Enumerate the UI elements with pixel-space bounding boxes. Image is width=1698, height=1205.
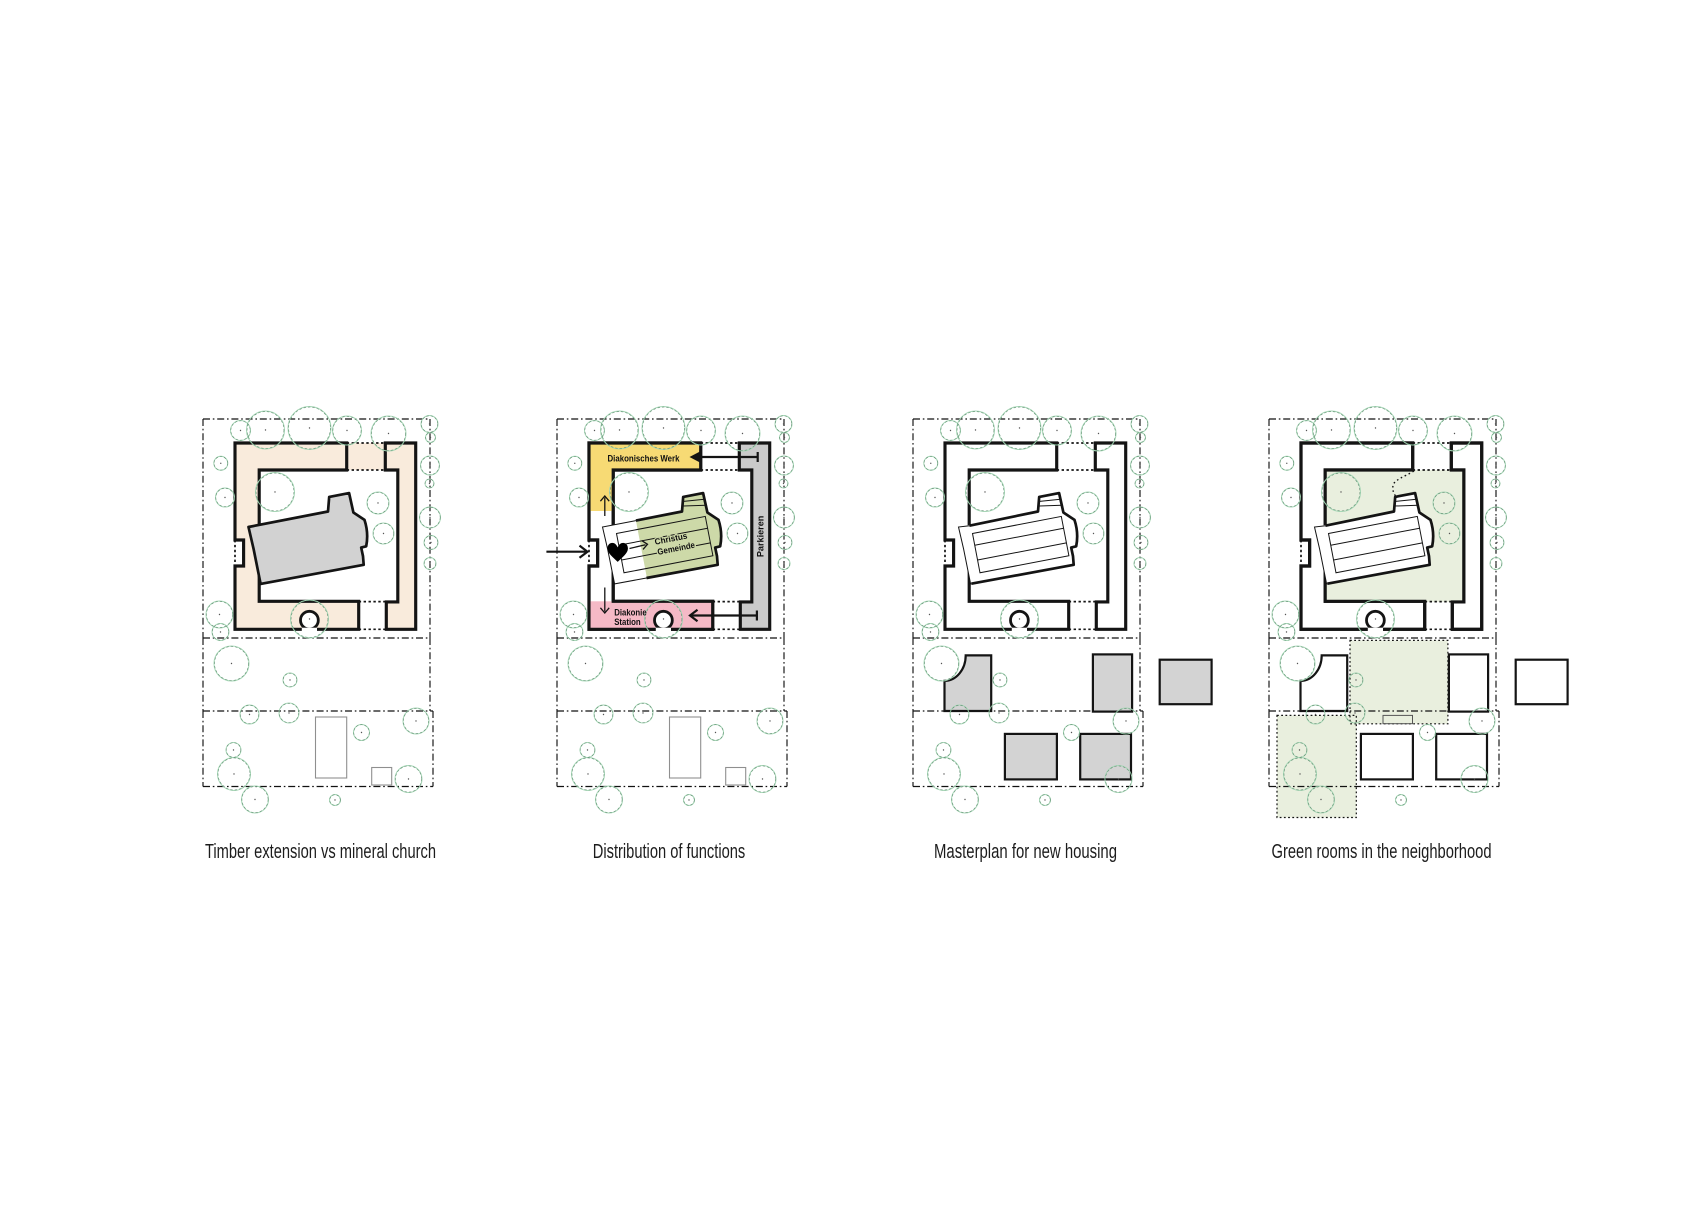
svg-text:Station: Station [614,617,641,627]
svg-text:Green rooms in the neighborhoo: Green rooms in the neighborhood [1272,840,1492,863]
svg-text:Parkieren: Parkieren [756,515,766,557]
svg-text:Distribution of functions: Distribution of functions [593,840,746,863]
svg-text:Diakonisches Werk: Diakonisches Werk [608,454,680,464]
svg-text:Masterplan for new housing: Masterplan for new housing [934,840,1117,863]
svg-text:Timber extension vs mineral ch: Timber extension vs mineral church [205,840,436,863]
svg-text:Diakonie: Diakonie [614,607,647,617]
